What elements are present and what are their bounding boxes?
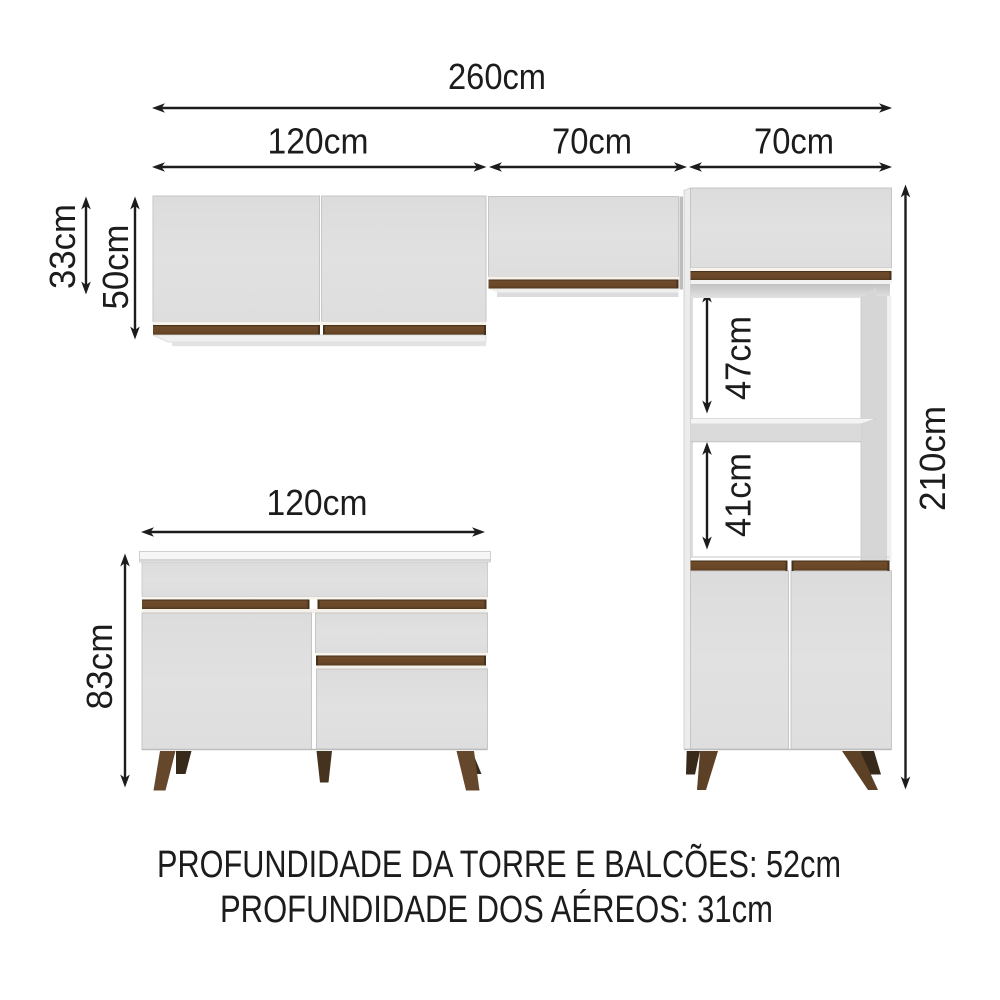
svg-text:70cm: 70cm xyxy=(552,121,632,162)
svg-text:41cm: 41cm xyxy=(718,453,759,537)
svg-text:47cm: 47cm xyxy=(718,316,759,400)
svg-text:PROFUNDIDADE DA TORRE E BALCÕE: PROFUNDIDADE DA TORRE E BALCÕES: 52cm xyxy=(157,842,841,886)
svg-text:83cm: 83cm xyxy=(79,624,120,710)
svg-text:33cm: 33cm xyxy=(42,204,83,289)
svg-text:120cm: 120cm xyxy=(267,482,368,523)
svg-text:210cm: 210cm xyxy=(912,406,953,511)
svg-text:260cm: 260cm xyxy=(448,56,546,97)
svg-text:50cm: 50cm xyxy=(95,225,136,310)
svg-text:120cm: 120cm xyxy=(268,121,369,162)
svg-text:70cm: 70cm xyxy=(754,121,834,162)
svg-text:PROFUNDIDADE DOS AÉREOS: 31cm: PROFUNDIDADE DOS AÉREOS: 31cm xyxy=(220,888,773,931)
